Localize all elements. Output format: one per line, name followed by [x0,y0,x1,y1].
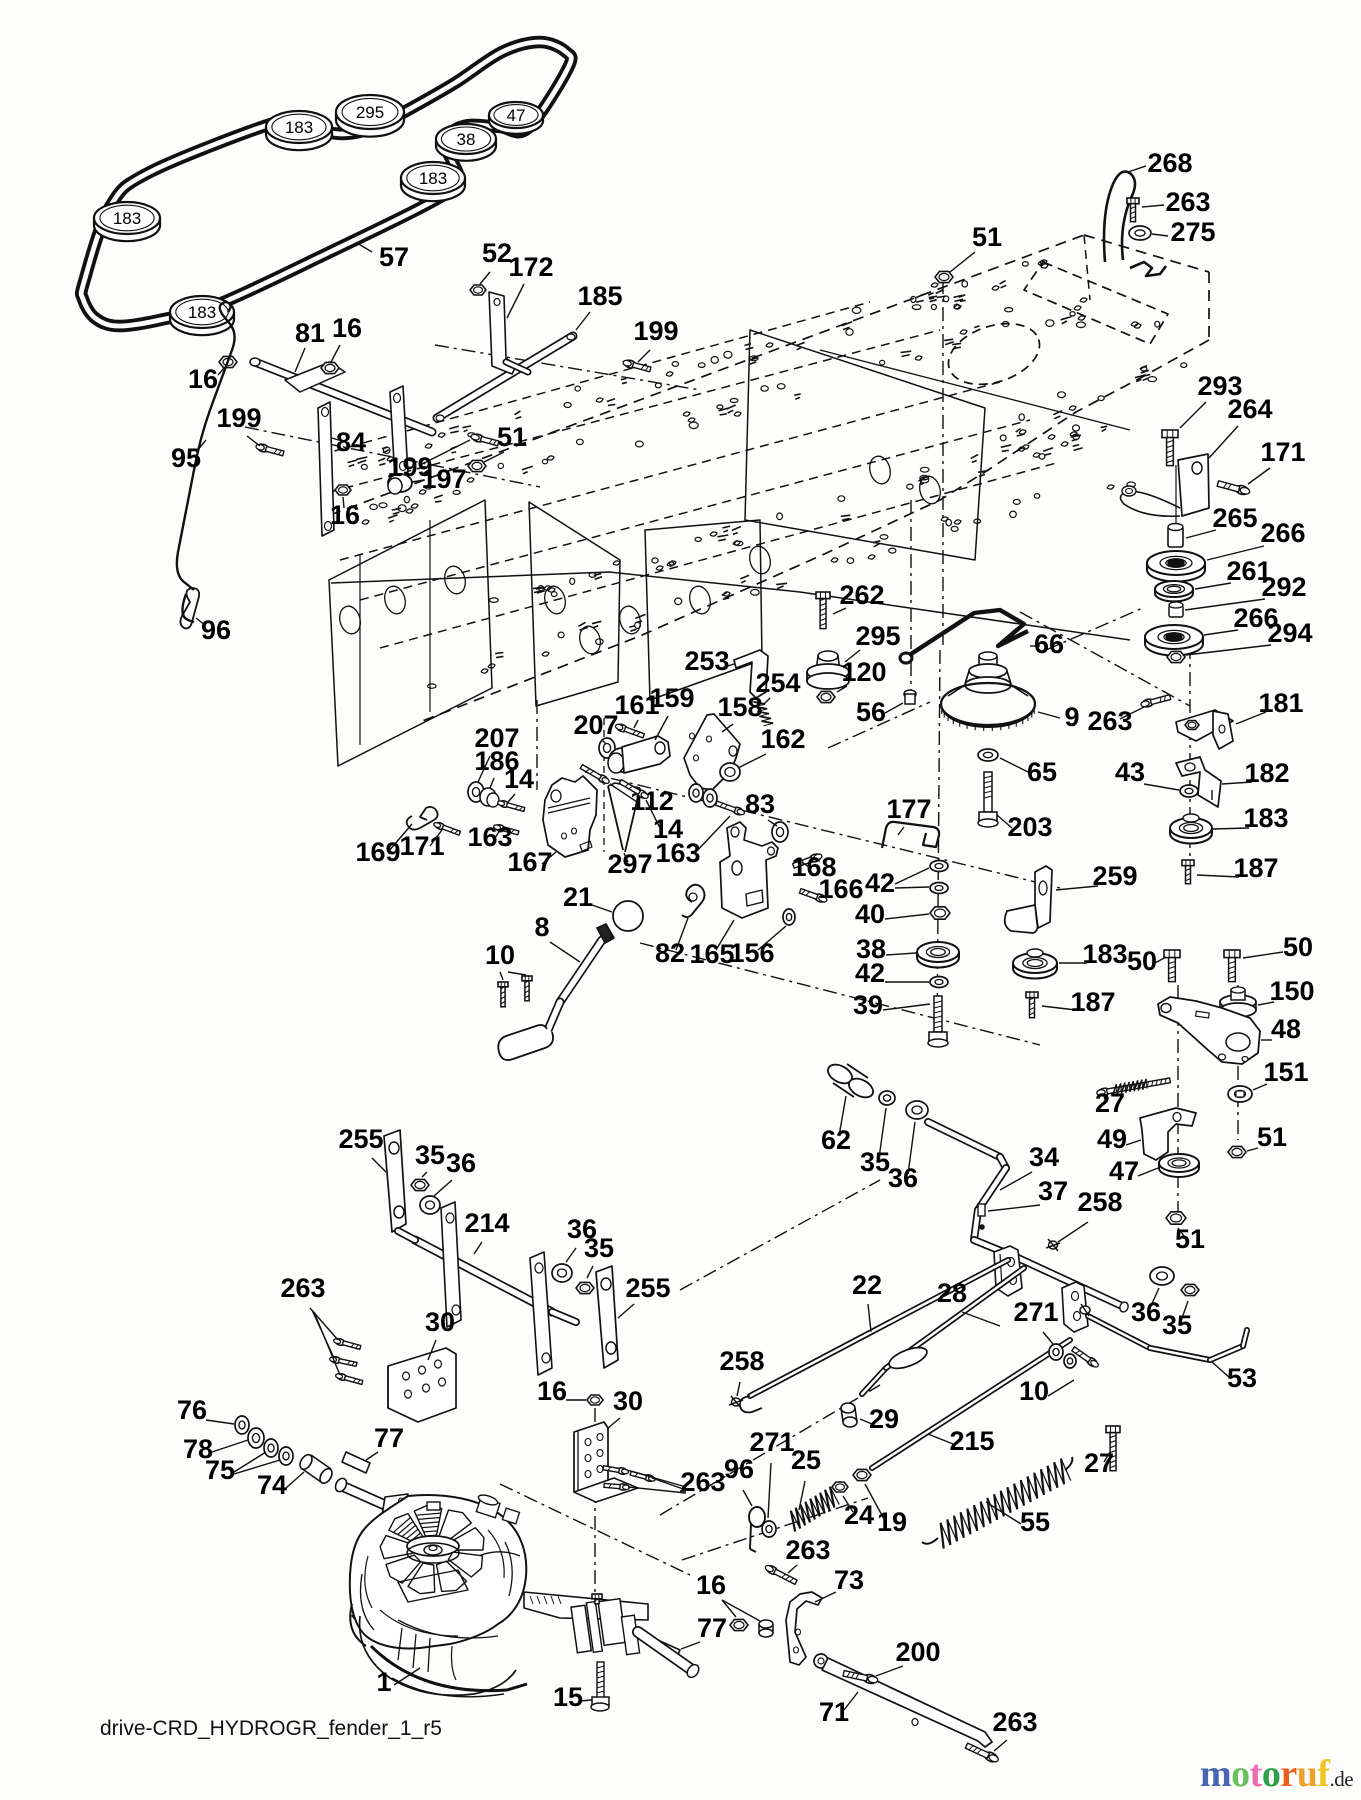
svg-text:263: 263 [1165,187,1210,217]
svg-text:30: 30 [425,1307,455,1337]
svg-text:16: 16 [537,1376,567,1406]
svg-text:62: 62 [821,1125,851,1155]
svg-text:292: 292 [1261,572,1306,602]
svg-text:83: 83 [745,789,775,819]
svg-text:271: 271 [1013,1297,1058,1327]
svg-text:53: 53 [1227,1363,1257,1393]
svg-text:165: 165 [689,939,734,969]
svg-text:47: 47 [507,106,526,125]
svg-text:262: 262 [839,580,884,610]
svg-text:96: 96 [201,615,231,645]
svg-text:297: 297 [607,849,652,879]
svg-text:169: 169 [355,837,400,867]
svg-text:51: 51 [1175,1224,1205,1254]
svg-text:181: 181 [1258,688,1303,718]
svg-text:162: 162 [760,724,805,754]
svg-text:84: 84 [336,427,366,457]
svg-text:77: 77 [374,1423,404,1453]
svg-text:264: 264 [1227,394,1272,424]
svg-text:120: 120 [841,657,886,687]
svg-text:183: 183 [1082,939,1127,969]
svg-text:35: 35 [415,1140,445,1170]
svg-text:34: 34 [1029,1142,1059,1172]
svg-text:56: 56 [856,697,886,727]
svg-text:265: 265 [1212,503,1257,533]
svg-text:215: 215 [949,1426,994,1456]
svg-text:183: 183 [419,169,447,188]
svg-text:159: 159 [649,683,694,713]
svg-text:255: 255 [625,1273,670,1303]
svg-text:51: 51 [972,222,1002,252]
svg-text:66: 66 [1034,629,1064,659]
svg-text:25: 25 [791,1445,821,1475]
svg-text:16: 16 [332,313,362,343]
svg-text:14: 14 [504,764,534,794]
svg-text:8: 8 [534,912,549,942]
svg-text:150: 150 [1269,976,1314,1006]
svg-text:259: 259 [1092,861,1137,891]
svg-text:42: 42 [865,868,895,898]
svg-text:263: 263 [785,1535,830,1565]
svg-text:43: 43 [1115,757,1145,787]
svg-text:52: 52 [482,238,512,268]
svg-text:263: 263 [1087,706,1132,736]
svg-text:172: 172 [508,252,553,282]
svg-text:55: 55 [1020,1507,1050,1537]
svg-text:16: 16 [696,1570,726,1600]
svg-text:48: 48 [1271,1014,1301,1044]
svg-text:167: 167 [507,847,552,877]
svg-text:37: 37 [1038,1176,1068,1206]
svg-text:199: 199 [216,403,261,433]
svg-text:76: 76 [177,1395,207,1425]
svg-text:200: 200 [895,1637,940,1667]
svg-text:42: 42 [855,958,885,988]
svg-text:185: 185 [577,281,622,311]
svg-text:268: 268 [1147,148,1192,178]
svg-text:51: 51 [1257,1122,1287,1152]
svg-text:51: 51 [497,422,527,452]
svg-text:271: 271 [749,1427,794,1457]
svg-text:36: 36 [1131,1297,1161,1327]
svg-text:183: 183 [113,209,141,228]
svg-text:183: 183 [285,118,313,137]
svg-text:50: 50 [1127,946,1157,976]
svg-text:50: 50 [1283,932,1313,962]
svg-text:258: 258 [1077,1187,1122,1217]
svg-text:163: 163 [655,838,700,868]
svg-text:27: 27 [1095,1088,1125,1118]
svg-text:183: 183 [1243,803,1288,833]
svg-text:35: 35 [1162,1310,1192,1340]
svg-text:30: 30 [613,1386,643,1416]
svg-text:295: 295 [855,621,900,651]
svg-text:199: 199 [633,316,678,346]
svg-text:214: 214 [464,1208,509,1238]
svg-text:73: 73 [834,1565,864,1595]
svg-text:35: 35 [860,1147,890,1177]
svg-text:158: 158 [717,692,762,722]
svg-text:drive-CRD_HYDROGR_fender_1_r5: drive-CRD_HYDROGR_fender_1_r5 [100,1717,442,1740]
svg-text:171: 171 [1260,437,1305,467]
svg-text:253: 253 [684,646,729,676]
svg-text:255: 255 [338,1124,383,1154]
svg-text:166: 166 [818,874,863,904]
svg-text:187: 187 [1070,987,1115,1017]
svg-text:71: 71 [819,1697,849,1727]
svg-text:74: 74 [257,1470,287,1500]
svg-text:266: 266 [1260,518,1305,548]
svg-text:82: 82 [655,938,685,968]
svg-text:36: 36 [888,1163,918,1193]
svg-text:1: 1 [376,1667,391,1697]
svg-text:29: 29 [869,1404,899,1434]
svg-text:36: 36 [446,1148,476,1178]
svg-text:95: 95 [171,443,201,473]
svg-text:263: 263 [680,1467,725,1497]
svg-text:57: 57 [379,242,409,272]
svg-text:183: 183 [188,303,216,322]
svg-text:182: 182 [1244,758,1289,788]
svg-text:207: 207 [573,710,618,740]
svg-text:10: 10 [1019,1376,1049,1406]
svg-text:187: 187 [1233,853,1278,883]
svg-text:258: 258 [719,1346,764,1376]
svg-text:81: 81 [295,318,325,348]
svg-text:28: 28 [937,1278,967,1308]
svg-text:295: 295 [356,103,384,122]
svg-text:199: 199 [387,452,432,482]
svg-text:47: 47 [1109,1156,1139,1186]
svg-text:75: 75 [205,1455,235,1485]
svg-text:77: 77 [697,1613,727,1643]
svg-text:21: 21 [563,882,593,912]
svg-text:19: 19 [877,1507,907,1537]
svg-text:15: 15 [553,1682,583,1712]
svg-text:163: 163 [467,822,512,852]
svg-text:177: 177 [886,794,931,824]
svg-text:39: 39 [853,990,883,1020]
svg-text:10: 10 [485,940,515,970]
svg-text:263: 263 [280,1273,325,1303]
svg-text:65: 65 [1027,757,1057,787]
svg-text:22: 22 [852,1270,882,1300]
svg-text:38: 38 [457,130,476,149]
svg-text:151: 151 [1263,1057,1308,1087]
svg-text:16: 16 [330,500,360,530]
svg-text:16: 16 [188,364,218,394]
svg-text:203: 203 [1007,812,1052,842]
svg-text:35: 35 [584,1233,614,1263]
svg-text:294: 294 [1267,618,1312,648]
svg-text:9: 9 [1064,702,1079,732]
svg-text:263: 263 [992,1707,1037,1737]
svg-text:275: 275 [1170,217,1215,247]
svg-text:96: 96 [724,1454,754,1484]
svg-text:49: 49 [1097,1124,1127,1154]
